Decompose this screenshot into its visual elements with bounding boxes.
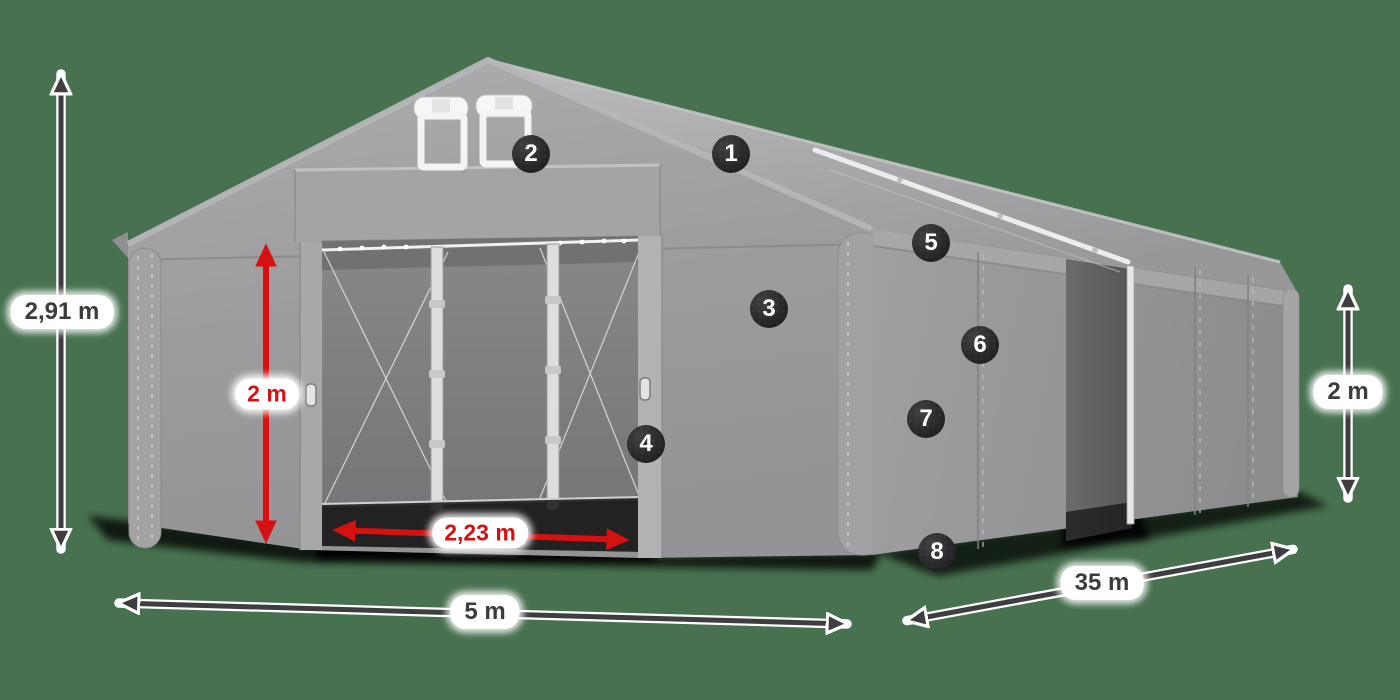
feature-badge-8[interactable]: 8 (918, 533, 956, 571)
feature-badge-2[interactable]: 2 (512, 135, 550, 173)
dimension-label-side-height: 2 m (1313, 375, 1382, 409)
dimension-label-entrance-height: 2 m (235, 379, 299, 410)
feature-badge-5[interactable]: 5 (912, 224, 950, 262)
dimension-label-entrance-width: 2,23 m (432, 518, 528, 549)
annotation-layer: 2,91 m2 m2,23 m5 m35 m2 m12345678 (0, 0, 1400, 700)
feature-badge-4[interactable]: 4 (627, 425, 665, 463)
feature-badge-7[interactable]: 7 (907, 400, 945, 438)
dimension-label-length: 35 m (1061, 566, 1144, 600)
product-diagram-stage: 2,91 m2 m2,23 m5 m35 m2 m12345678 (0, 0, 1400, 700)
dimension-label-total-height: 2,91 m (11, 295, 114, 329)
dimension-label-width: 5 m (450, 595, 519, 629)
feature-badge-3[interactable]: 3 (750, 290, 788, 328)
feature-badge-6[interactable]: 6 (961, 326, 999, 364)
feature-badge-1[interactable]: 1 (712, 135, 750, 173)
